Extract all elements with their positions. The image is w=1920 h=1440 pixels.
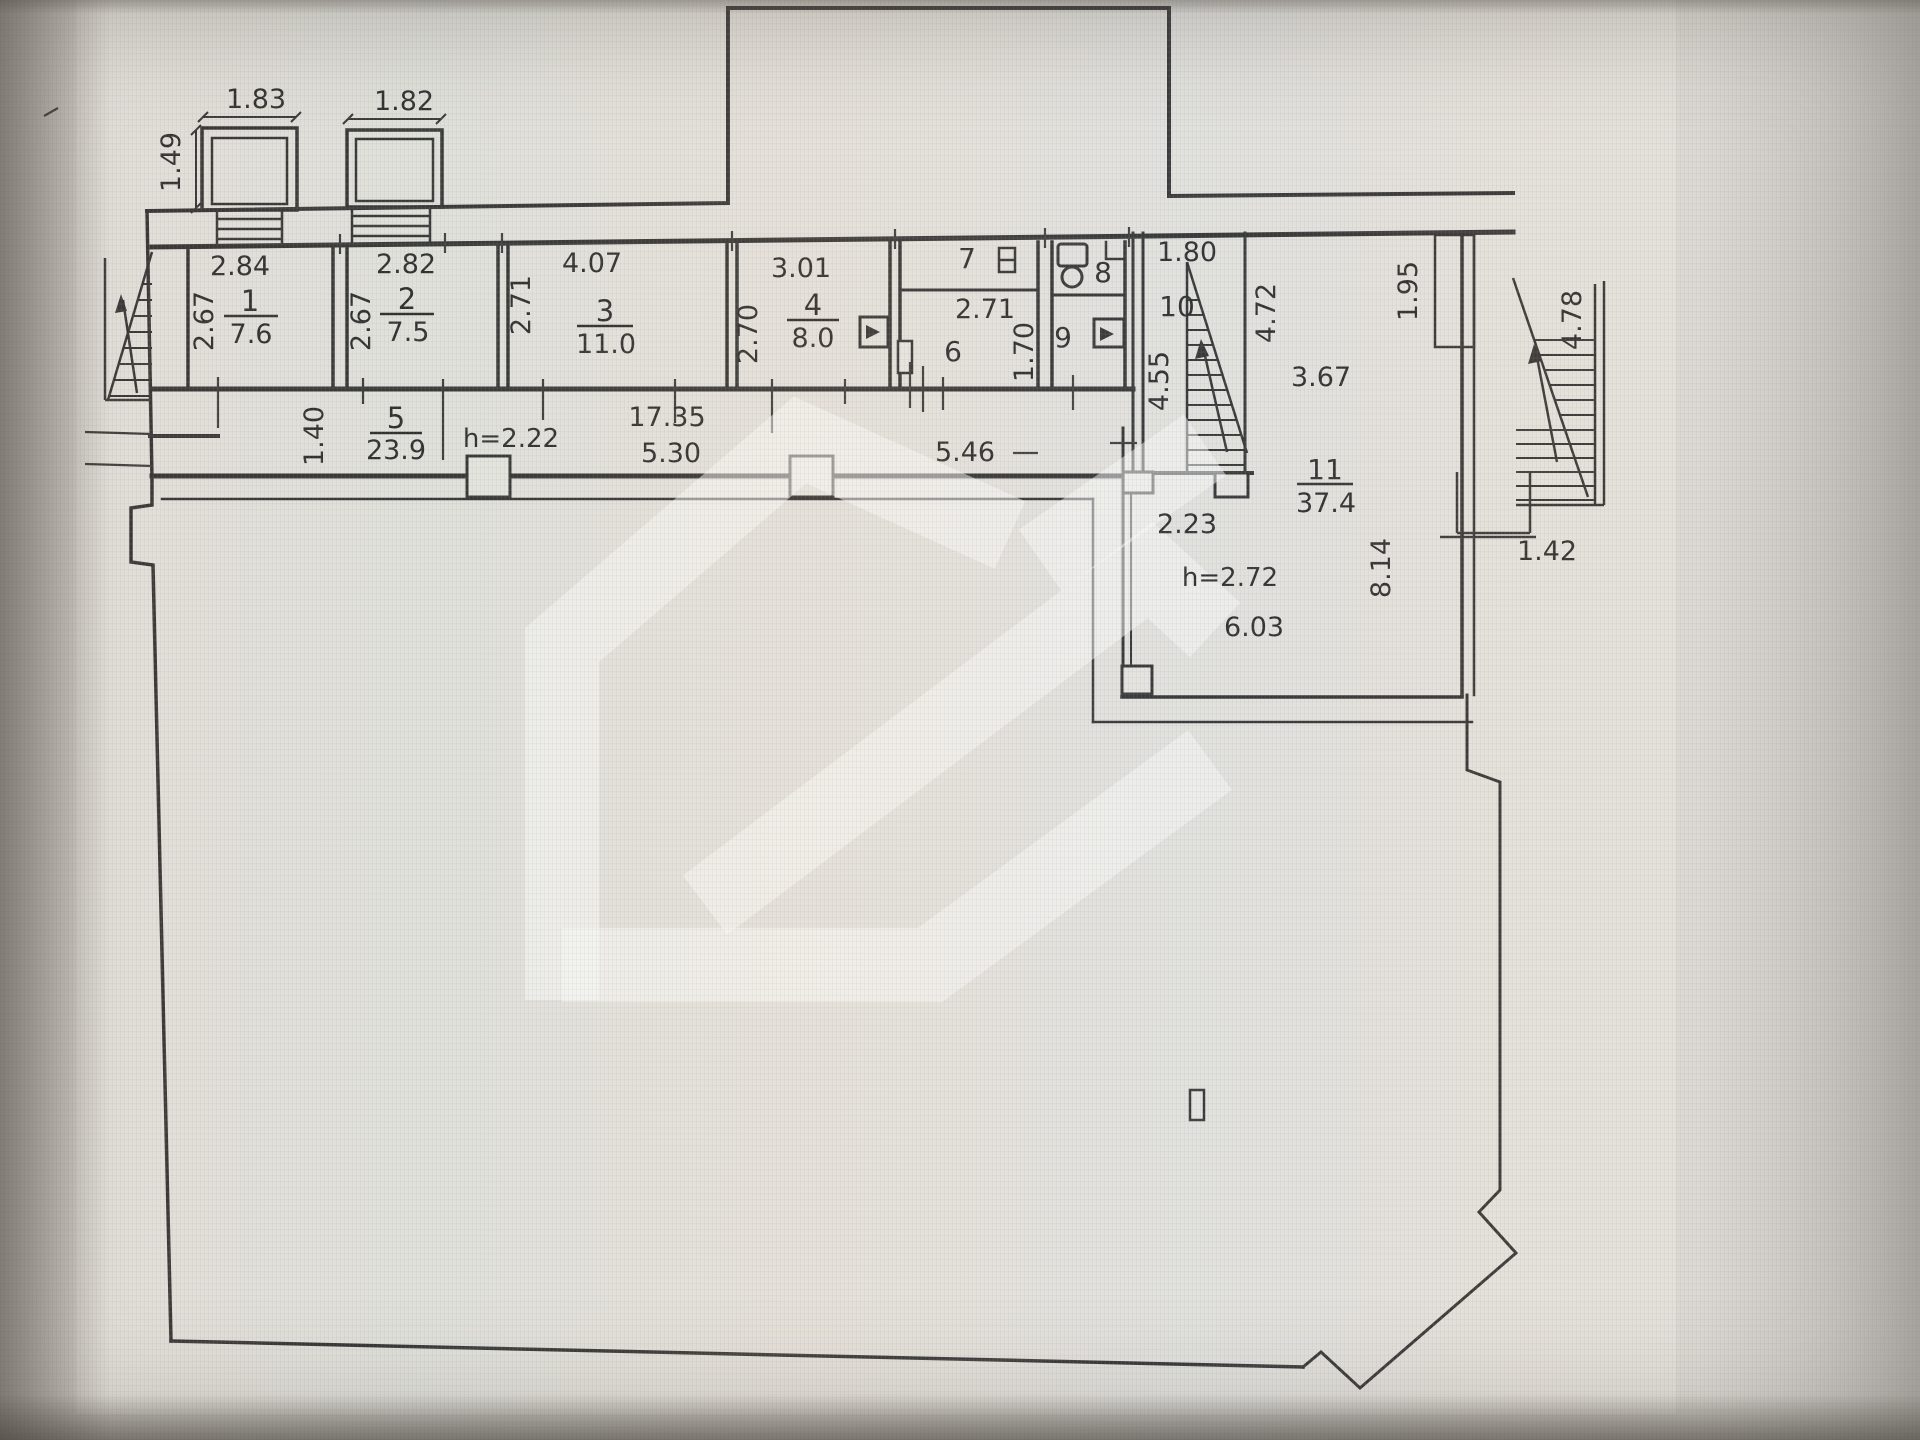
dim-balcony1-width: 1.83: [226, 84, 286, 115]
room4-area: 8.0: [792, 323, 835, 354]
dim-corridor-part2: 5.46: [935, 437, 995, 468]
room10-number: 10: [1159, 290, 1195, 323]
dim-room6-depth: 1.70: [1009, 322, 1040, 382]
floor-plan-photo: 1.83 1.82 1.49 2.84 2.67 1 7.6 2.82 2.67…: [0, 0, 1920, 1440]
dim-room3-width: 4.07: [562, 248, 622, 279]
room7-number: 7: [958, 242, 976, 275]
dim-room11-passage: 2.23: [1157, 509, 1217, 540]
dim-corridor-total: 17.35: [628, 402, 705, 433]
room5-number: 5: [387, 401, 405, 435]
dim-balcony-depth: 1.49: [156, 132, 187, 192]
room9-number: 9: [1054, 321, 1072, 354]
dim-stair-landing: 1.42: [1517, 536, 1577, 567]
dim-balcony2-width: 1.82: [374, 86, 434, 117]
room4-number: 4: [804, 288, 822, 322]
room11-number: 11: [1307, 453, 1343, 486]
dim-room5-depth: 1.40: [299, 406, 330, 466]
dim-room11-depth: 8.14: [1366, 538, 1397, 598]
room3-area: 11.0: [576, 329, 636, 360]
room2-number: 2: [398, 282, 416, 316]
room1-area: 7.6: [230, 319, 273, 350]
paper-sheet: [76, 0, 1676, 1414]
dim-room11-w2: 3.67: [1291, 362, 1351, 393]
room5-area: 23.9: [366, 435, 426, 466]
dim-room10-depth: 4.55: [1144, 351, 1175, 411]
dim-room4-depth: 2.70: [733, 304, 764, 364]
dim-room10-width: 1.80: [1157, 237, 1217, 268]
dim-room1-depth: 2.67: [189, 291, 220, 351]
dim-room11-w1: 4.72: [1251, 283, 1282, 343]
dim-room5-height: h=2.22: [463, 424, 559, 454]
dim-room4-width: 3.01: [771, 253, 831, 284]
room6-number: 6: [944, 335, 962, 368]
dim-room2-depth: 2.67: [346, 291, 377, 351]
dim-room1-width: 2.84: [210, 251, 270, 282]
floor-plan-drawing: 1.83 1.82 1.49 2.84 2.67 1 7.6 2.82 2.67…: [0, 0, 1920, 1440]
dim-room3-depth: 2.71: [506, 275, 537, 335]
dim-room11-w3: 6.03: [1224, 612, 1284, 643]
dim-room2-width: 2.82: [376, 249, 436, 280]
room2-area: 7.5: [387, 317, 430, 348]
room11-area: 37.4: [1296, 488, 1356, 519]
dim-room11-height: h=2.72: [1182, 563, 1278, 593]
dim-stair-right: 4.78: [1557, 290, 1588, 350]
dim-corridor-part1: 5.30: [641, 438, 701, 469]
room8-number: 8: [1094, 256, 1112, 289]
dim-niche: 1.95: [1393, 261, 1424, 321]
room1-number: 1: [241, 284, 259, 318]
room3-number: 3: [596, 294, 614, 328]
dim-room6-width: 2.71: [955, 294, 1015, 325]
